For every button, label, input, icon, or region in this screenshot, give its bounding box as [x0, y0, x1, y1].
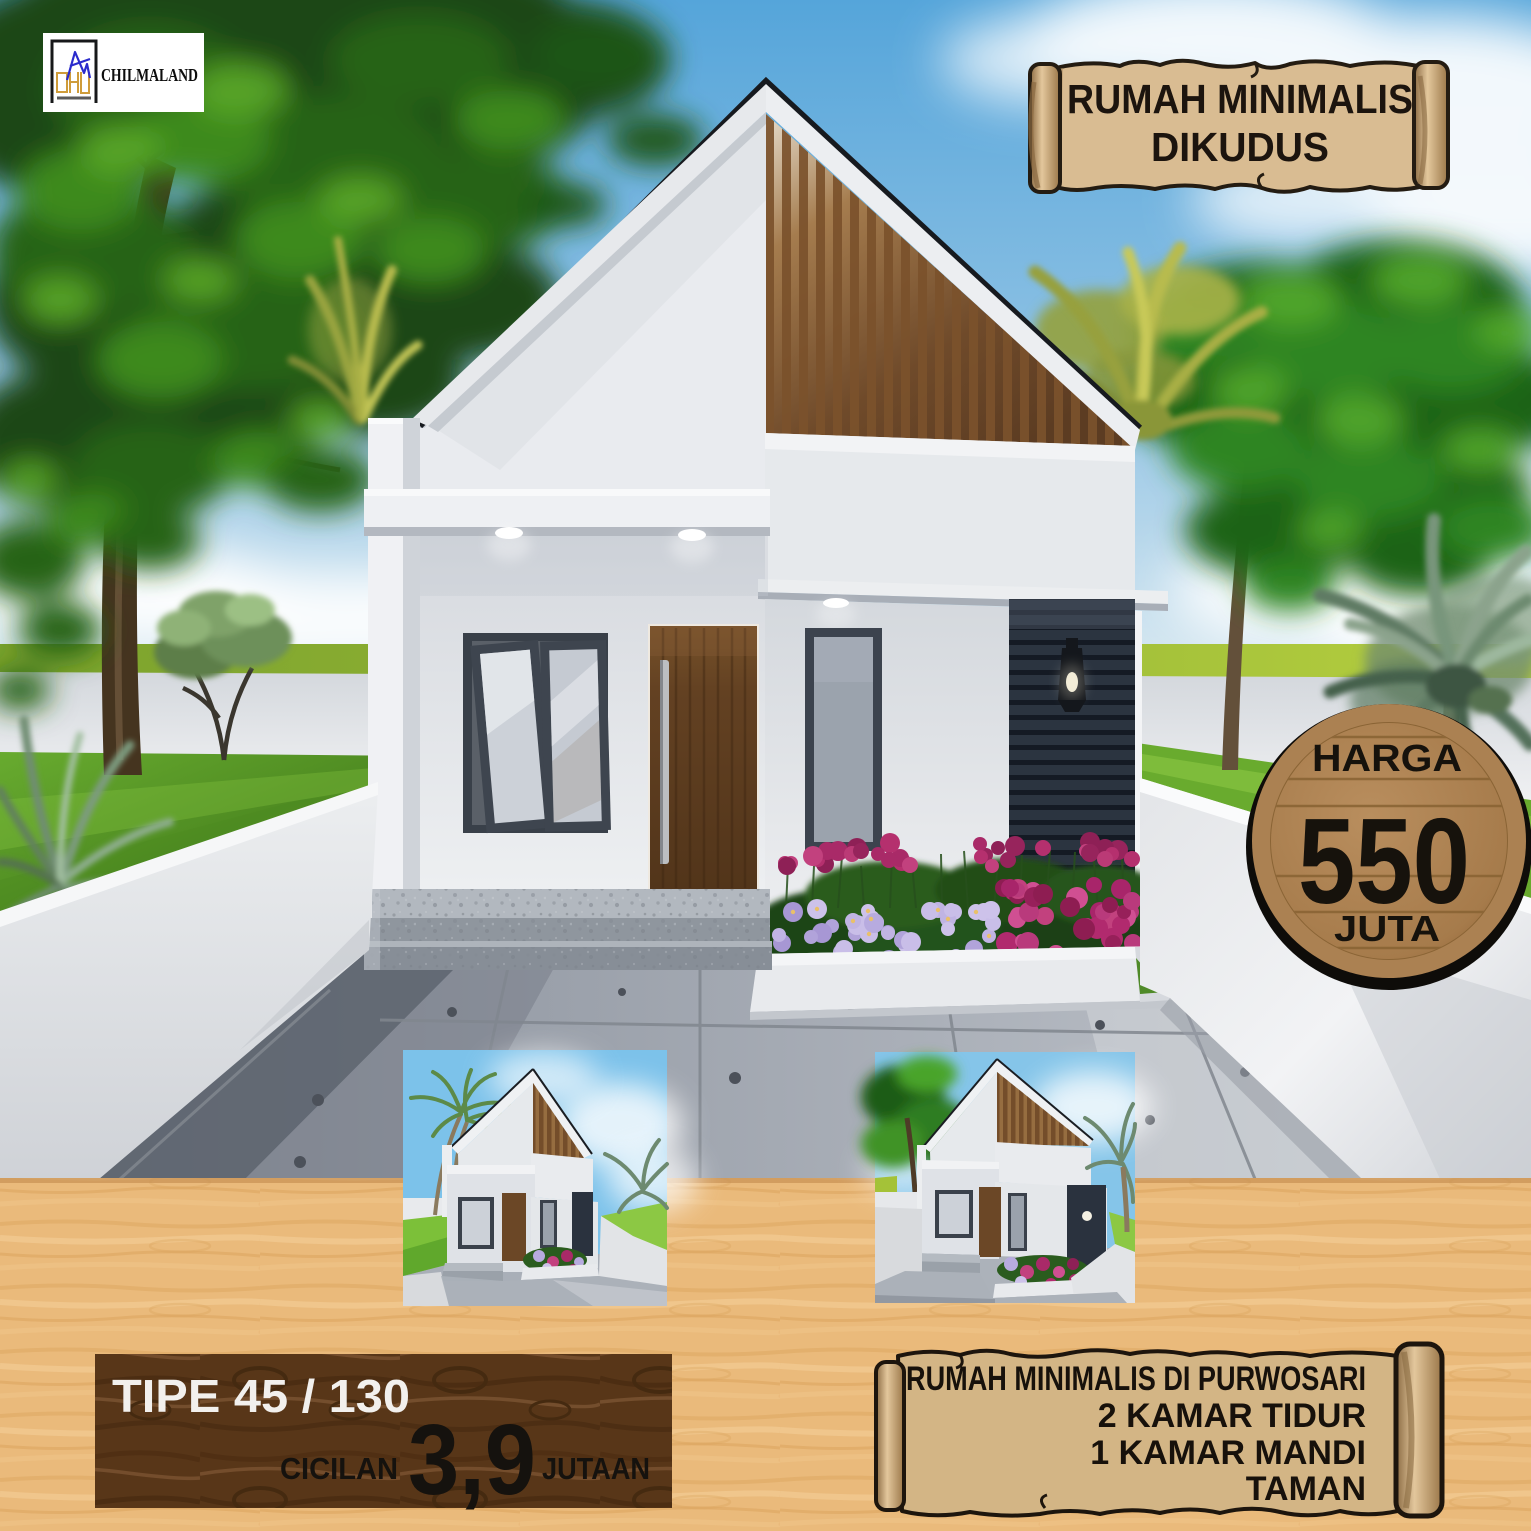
svg-text:JUTAAN: JUTAAN	[542, 1451, 650, 1486]
svg-text:CICILAN: CICILAN	[280, 1451, 398, 1486]
svg-text:1 KAMAR MANDI: 1 KAMAR MANDI	[1090, 1434, 1366, 1472]
svg-text:JUTA: JUTA	[1334, 908, 1440, 949]
svg-text:2 KAMAR TIDUR: 2 KAMAR TIDUR	[1098, 1397, 1366, 1435]
svg-text:RUMAH MINIMALIS DI PURWOSARI: RUMAH MINIMALIS DI PURWOSARI	[906, 1360, 1366, 1398]
svg-text:TIPE 45 / 130: TIPE 45 / 130	[112, 1370, 410, 1422]
svg-text:3,9: 3,9	[408, 1404, 536, 1516]
svg-text:DIKUDUS: DIKUDUS	[1151, 124, 1329, 170]
svg-text:HARGA: HARGA	[1312, 738, 1462, 780]
svg-text:TAMAN: TAMAN	[1246, 1470, 1366, 1508]
svg-text:RUMAH MINIMALIS: RUMAH MINIMALIS	[1067, 76, 1413, 122]
svg-text:CHILMALAND: CHILMALAND	[101, 65, 198, 85]
